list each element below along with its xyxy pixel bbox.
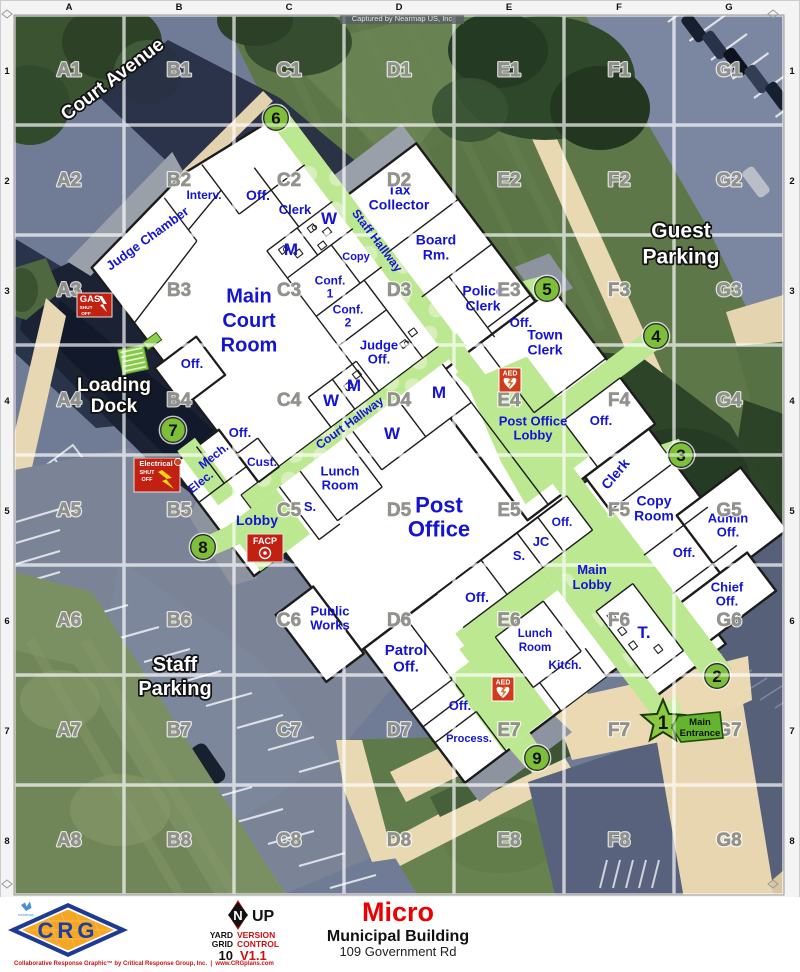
svg-text:T.: T.: [637, 623, 650, 642]
svg-text:Court: Court: [222, 310, 276, 332]
svg-text:OFF: OFF: [142, 477, 154, 483]
svg-text:W: W: [321, 209, 338, 228]
svg-text:A8: A8: [57, 830, 81, 851]
svg-text:Off.: Off.: [449, 698, 471, 713]
svg-text:B6: B6: [167, 610, 191, 631]
svg-text:Clerk: Clerk: [465, 298, 500, 314]
svg-text:D5: D5: [387, 500, 412, 521]
svg-text:S.: S.: [304, 499, 316, 514]
svg-text:E4: E4: [497, 390, 521, 411]
svg-text:Board: Board: [416, 231, 456, 247]
svg-text:Judge: Judge: [360, 338, 398, 353]
svg-text:7: 7: [4, 726, 9, 737]
svg-text:C8: C8: [277, 830, 301, 851]
svg-text:C: C: [286, 2, 293, 13]
svg-text:4: 4: [651, 327, 661, 346]
svg-text:E1: E1: [497, 60, 521, 81]
svg-text:CRG: CRG: [38, 918, 99, 943]
svg-text:1: 1: [658, 713, 669, 734]
svg-text:FACP: FACP: [253, 536, 277, 546]
svg-text:Town: Town: [527, 326, 563, 342]
svg-text:JC: JC: [533, 534, 550, 549]
svg-text:F2: F2: [608, 170, 630, 191]
svg-text:C6: C6: [277, 610, 301, 631]
svg-text:Off.: Off.: [229, 425, 251, 440]
svg-text:B3: B3: [167, 280, 191, 301]
svg-text:N: N: [233, 908, 242, 923]
svg-text:Works: Works: [310, 618, 350, 633]
svg-text:Lunch: Lunch: [518, 628, 553, 640]
svg-text:7: 7: [789, 726, 794, 737]
svg-text:Staff: Staff: [153, 654, 198, 676]
svg-text:E7: E7: [497, 720, 520, 741]
svg-text:D7: D7: [387, 720, 411, 741]
svg-text:G6: G6: [716, 610, 741, 631]
svg-text:Collaborative Response Graphic: Collaborative Response Graphic™ by Criti…: [14, 960, 274, 967]
svg-text:C5: C5: [277, 500, 302, 521]
svg-text:Room: Room: [322, 478, 359, 493]
svg-text:Loading: Loading: [77, 375, 151, 396]
svg-text:Off.: Off.: [368, 352, 390, 367]
svg-text:SHUT: SHUT: [79, 305, 92, 311]
svg-text:2: 2: [4, 176, 9, 187]
svg-text:G8: G8: [716, 830, 741, 851]
svg-text:C7: C7: [277, 720, 301, 741]
svg-text:Public: Public: [310, 604, 349, 619]
svg-text:C3: C3: [277, 280, 301, 301]
svg-text:8: 8: [198, 538, 207, 557]
svg-text:A: A: [66, 2, 73, 13]
svg-text:A4: A4: [57, 390, 82, 411]
svg-text:Dock: Dock: [91, 396, 138, 417]
svg-text:D3: D3: [387, 280, 411, 301]
svg-text:Copy: Copy: [637, 492, 672, 508]
svg-text:Main: Main: [226, 286, 272, 308]
svg-text:B1: B1: [167, 60, 192, 81]
svg-text:F3: F3: [608, 280, 630, 301]
svg-text:4: 4: [4, 396, 10, 407]
svg-text:F4: F4: [608, 390, 631, 411]
svg-text:D8: D8: [387, 830, 411, 851]
svg-text:9: 9: [532, 749, 541, 768]
svg-text:5: 5: [4, 506, 10, 517]
svg-text:Copy: Copy: [342, 251, 370, 263]
svg-text:W: W: [384, 424, 401, 443]
svg-text:Electrical: Electrical: [139, 459, 172, 468]
svg-text:1: 1: [4, 66, 10, 77]
svg-text:C1: C1: [277, 60, 302, 81]
svg-text:Room: Room: [519, 642, 552, 654]
svg-text:W: W: [323, 391, 340, 410]
svg-text:5: 5: [542, 280, 551, 299]
svg-text:A7: A7: [57, 720, 81, 741]
svg-text:E3: E3: [497, 280, 520, 301]
svg-text:3: 3: [789, 286, 794, 297]
svg-text:AED: AED: [503, 371, 518, 378]
svg-text:D4: D4: [387, 390, 412, 411]
svg-text:Clerk: Clerk: [279, 202, 312, 217]
svg-text:7: 7: [168, 421, 177, 440]
svg-text:Post Office: Post Office: [499, 414, 568, 429]
svg-text:5: 5: [789, 506, 795, 517]
svg-text:G2: G2: [716, 170, 741, 191]
svg-text:G1: G1: [716, 60, 742, 81]
svg-text:M: M: [284, 240, 298, 259]
svg-text:F7: F7: [608, 720, 630, 741]
svg-text:G5: G5: [716, 500, 742, 521]
svg-text:8: 8: [789, 836, 794, 847]
svg-text:Lobby: Lobby: [236, 512, 278, 528]
svg-text:E6: E6: [497, 610, 520, 631]
svg-text:M: M: [432, 383, 446, 402]
svg-text:2: 2: [345, 316, 352, 330]
svg-text:Off.: Off.: [393, 658, 419, 675]
svg-text:G: G: [725, 2, 732, 13]
svg-text:Off.: Off.: [716, 594, 738, 609]
svg-text:F6: F6: [608, 610, 630, 631]
svg-text:Conf.: Conf.: [333, 303, 364, 317]
svg-text:Main: Main: [689, 717, 711, 728]
svg-text:E8: E8: [497, 830, 520, 851]
svg-text:C2: C2: [277, 170, 301, 191]
svg-text:G4: G4: [716, 390, 742, 411]
svg-text:nearmap: nearmap: [18, 912, 35, 917]
svg-text:Clerk: Clerk: [527, 342, 562, 358]
svg-text:B4: B4: [167, 390, 192, 411]
svg-text:D6: D6: [387, 610, 411, 631]
svg-text:AED: AED: [496, 680, 511, 687]
svg-text:Collector: Collector: [369, 197, 430, 213]
svg-text:Rm.: Rm.: [423, 247, 449, 263]
svg-text:C4: C4: [277, 390, 302, 411]
svg-text:Process.: Process.: [446, 733, 492, 745]
svg-text:1: 1: [789, 66, 795, 77]
svg-text:S.: S.: [513, 548, 525, 563]
svg-text:Off.: Off.: [590, 413, 612, 428]
svg-text:Room: Room: [221, 335, 278, 357]
svg-text:Main: Main: [577, 562, 607, 577]
svg-text:Chief: Chief: [711, 580, 744, 595]
svg-text:Interv.: Interv.: [186, 188, 221, 202]
svg-text:Patrol: Patrol: [385, 642, 428, 659]
svg-text:Off.: Off.: [465, 589, 489, 605]
svg-text:Cust.: Cust.: [247, 455, 277, 469]
svg-text:8: 8: [4, 836, 9, 847]
svg-text:A6: A6: [57, 610, 81, 631]
svg-text:G3: G3: [716, 280, 741, 301]
svg-text:Off.: Off.: [181, 356, 203, 371]
svg-text:109 Government Rd: 109 Government Rd: [339, 944, 456, 959]
svg-text:4: 4: [789, 396, 795, 407]
svg-text:Off.: Off.: [552, 515, 573, 529]
svg-text:B8: B8: [167, 830, 191, 851]
svg-text:UP: UP: [252, 908, 275, 925]
svg-text:1: 1: [327, 287, 334, 301]
svg-text:Off.: Off.: [673, 545, 695, 560]
svg-text:Off.: Off.: [246, 187, 270, 203]
svg-text:F: F: [616, 2, 622, 13]
svg-text:3: 3: [4, 286, 9, 297]
svg-text:E5: E5: [497, 500, 521, 521]
svg-text:OFF: OFF: [81, 311, 91, 317]
svg-text:GAS: GAS: [80, 294, 101, 305]
svg-text:B5: B5: [167, 500, 192, 521]
svg-text:A1: A1: [57, 60, 82, 81]
svg-text:Parking: Parking: [642, 245, 719, 268]
svg-text:Conf.: Conf.: [315, 274, 346, 288]
svg-text:F5: F5: [608, 500, 631, 521]
svg-text:Entrance: Entrance: [680, 728, 721, 739]
svg-text:Off.: Off.: [717, 525, 739, 540]
svg-text:Municipal Building: Municipal Building: [327, 928, 469, 945]
svg-text:B7: B7: [167, 720, 191, 741]
svg-text:A5: A5: [57, 500, 82, 521]
svg-text:Post: Post: [415, 493, 463, 518]
svg-text:M: M: [347, 376, 361, 395]
svg-text:2: 2: [789, 176, 794, 187]
svg-text:E: E: [506, 2, 512, 13]
svg-text:F1: F1: [608, 60, 631, 81]
svg-text:Kitch.: Kitch.: [548, 658, 581, 672]
svg-text:A2: A2: [57, 170, 81, 191]
svg-text:Guest: Guest: [651, 219, 711, 242]
svg-text:Office: Office: [408, 517, 470, 542]
svg-text:6: 6: [4, 616, 9, 627]
svg-text:Lobby: Lobby: [514, 428, 554, 443]
svg-text:B: B: [176, 2, 183, 13]
svg-text:Parking: Parking: [138, 678, 211, 700]
svg-text:Lobby: Lobby: [573, 577, 613, 592]
svg-text:Lunch: Lunch: [321, 464, 360, 479]
svg-text:B2: B2: [167, 170, 191, 191]
svg-text:SHUT: SHUT: [140, 470, 156, 476]
svg-text:D: D: [396, 2, 403, 13]
svg-text:6: 6: [789, 616, 794, 627]
svg-text:D1: D1: [387, 60, 412, 81]
svg-text:Micro: Micro: [362, 897, 434, 927]
svg-text:Room: Room: [634, 508, 674, 524]
svg-text:F8: F8: [608, 830, 630, 851]
svg-text:D2: D2: [387, 170, 411, 191]
svg-text:E2: E2: [497, 170, 520, 191]
